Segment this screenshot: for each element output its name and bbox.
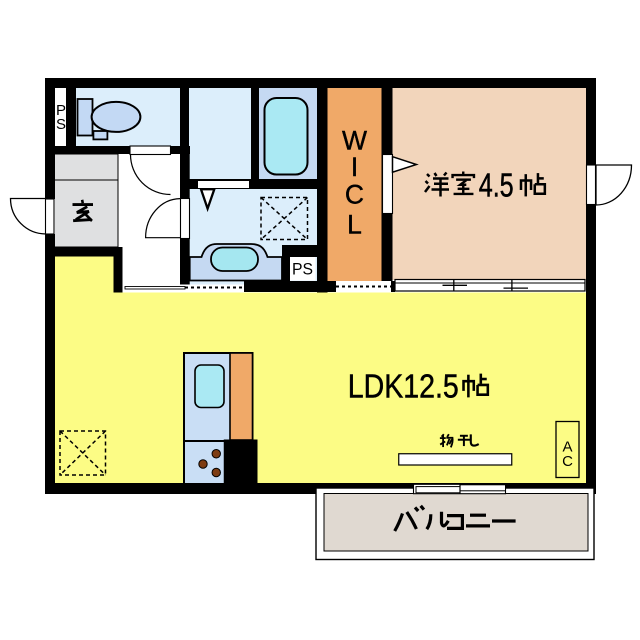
svg-text:W: W	[342, 126, 367, 156]
svg-text:LDK12.5: LDK12.5	[348, 368, 459, 406]
svg-text:L: L	[347, 210, 362, 240]
svg-text:S: S	[56, 116, 66, 133]
svg-text:PS: PS	[292, 260, 313, 279]
svg-text:C: C	[345, 180, 364, 210]
svg-text:4.5: 4.5	[479, 167, 514, 205]
svg-text:C: C	[562, 453, 573, 470]
svg-text:I: I	[351, 152, 358, 182]
